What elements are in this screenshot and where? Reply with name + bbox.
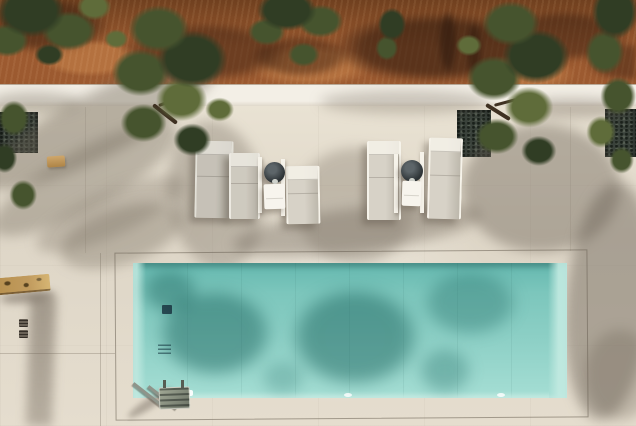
pool-ladder-steps xyxy=(159,386,191,409)
paver-joint xyxy=(0,353,115,354)
pool-ladder-post xyxy=(163,380,166,388)
pool-floor-light xyxy=(497,393,505,397)
sun-lounger xyxy=(194,141,233,219)
deck-drain-grate xyxy=(19,330,28,338)
pool-wall-jets xyxy=(158,343,171,354)
tree-reflections-on-water xyxy=(133,263,567,398)
sun-lounger xyxy=(229,153,260,219)
lounger-frame-rail xyxy=(394,154,398,213)
gravel-planter-bed xyxy=(605,109,636,157)
towel-table xyxy=(402,181,422,207)
pool-floor-grate xyxy=(162,305,172,314)
stone-wall-cast-shadow xyxy=(26,296,57,426)
tan-deck-object xyxy=(47,155,66,167)
round-side-table xyxy=(401,160,423,182)
sun-lounger xyxy=(285,166,320,225)
paver-joint xyxy=(100,253,101,426)
sun-lounger xyxy=(427,138,463,220)
pool-floor-light xyxy=(344,393,352,397)
pool-ladder-post xyxy=(181,380,184,388)
tree-shadows-on-earth xyxy=(0,0,636,92)
towel-table xyxy=(264,184,286,210)
round-side-table xyxy=(264,162,285,183)
aerial-pool-photo xyxy=(0,0,636,426)
tree-shadow xyxy=(512,98,632,118)
tree-shadow xyxy=(320,90,490,114)
deck-drain-grate xyxy=(19,319,28,327)
pool-water xyxy=(133,263,567,398)
lounger-frame-rail xyxy=(258,157,262,213)
